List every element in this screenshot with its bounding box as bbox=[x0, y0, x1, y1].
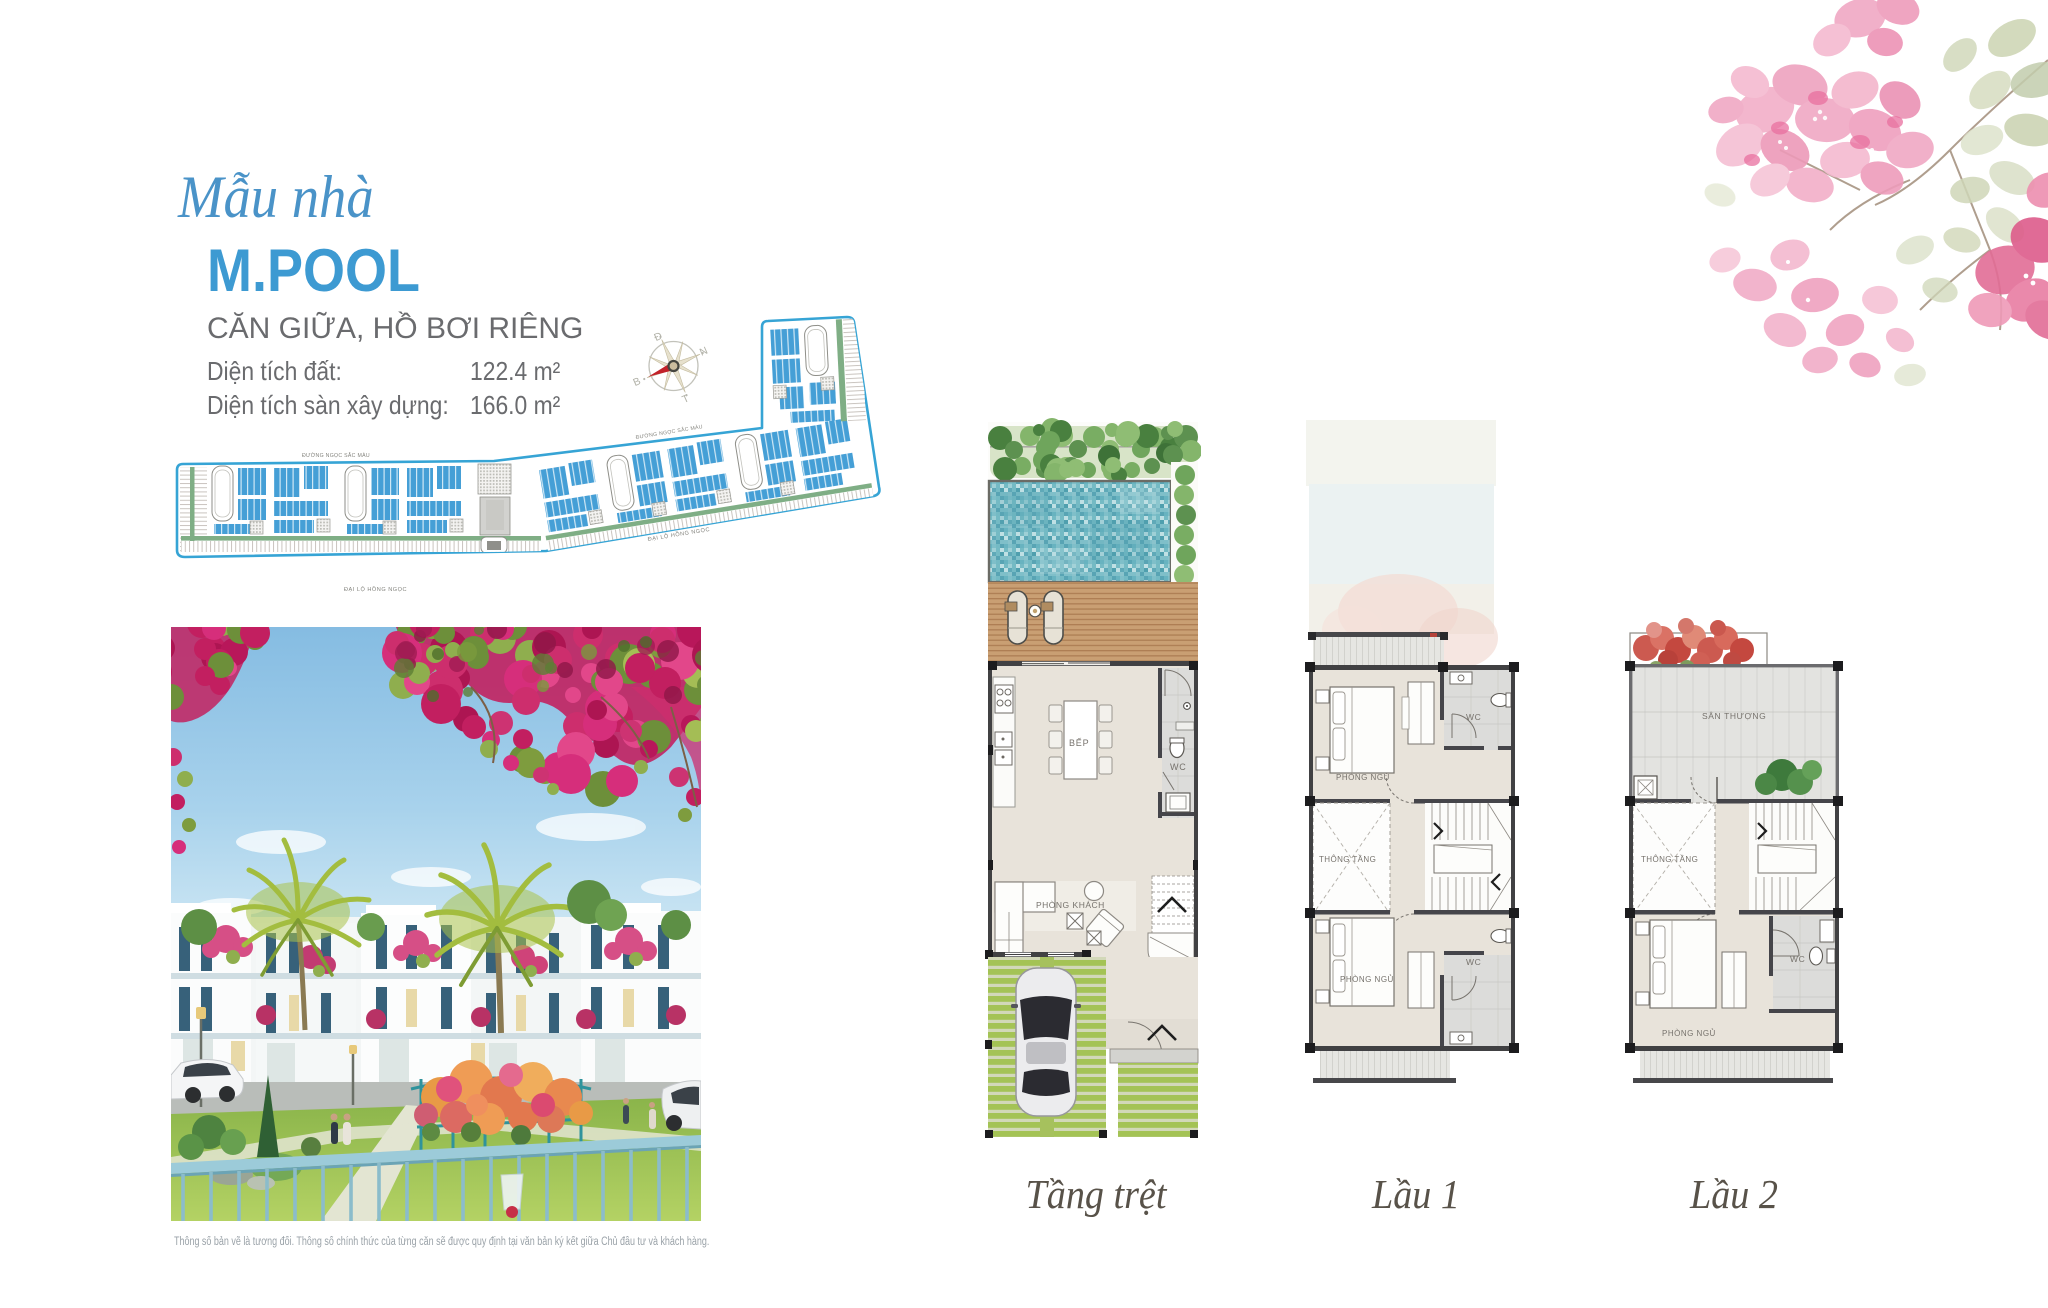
svg-text:PHÒNG KHÁCH: PHÒNG KHÁCH bbox=[1036, 900, 1105, 910]
svg-text:THÔNG TẦNG: THÔNG TẦNG bbox=[1319, 854, 1376, 864]
svg-text:WC: WC bbox=[1170, 762, 1186, 772]
svg-text:PHÒNG NGỦ: PHÒNG NGỦ bbox=[1662, 1029, 1716, 1038]
svg-text:WC: WC bbox=[1466, 957, 1481, 967]
svg-text:ĐƯỜNG NGỌC SẮC MÀU: ĐƯỜNG NGỌC SẮC MÀU bbox=[302, 451, 370, 459]
svg-text:ĐẠI LỘ HỒNG NGỌC: ĐẠI LỘ HỒNG NGỌC bbox=[344, 586, 407, 593]
svg-text:PHÒNG NGỦ: PHÒNG NGỦ bbox=[1336, 773, 1390, 782]
svg-text:THÔNG TẦNG: THÔNG TẦNG bbox=[1641, 854, 1698, 864]
svg-text:SÂN THƯỢNG: SÂN THƯỢNG bbox=[1702, 711, 1766, 721]
svg-text:WC: WC bbox=[1466, 712, 1481, 722]
svg-text:BẾP: BẾP bbox=[1069, 738, 1089, 748]
svg-text:WC: WC bbox=[1790, 954, 1805, 964]
svg-text:PHÒNG NGỦ: PHÒNG NGỦ bbox=[1340, 975, 1394, 984]
